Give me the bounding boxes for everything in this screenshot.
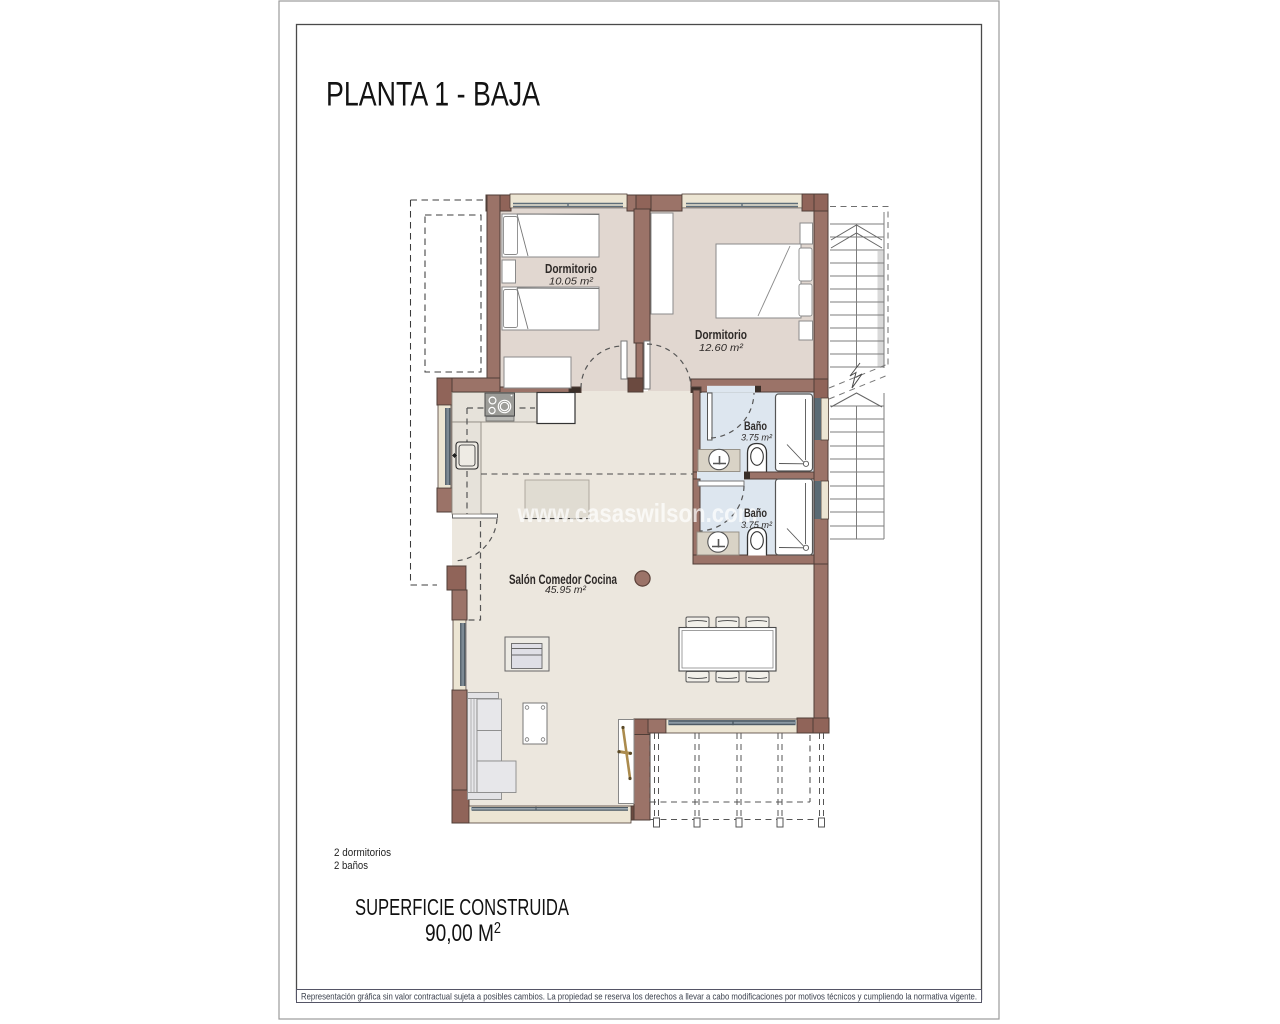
svg-text:2 dormitorios: 2 dormitorios — [334, 847, 391, 859]
svg-text:12.60 m²: 12.60 m² — [699, 342, 744, 354]
svg-text:90,00 M2: 90,00 M2 — [425, 920, 501, 947]
svg-text:Representación gráfica sin val: Representación gráfica sin valor contrac… — [301, 992, 977, 1002]
svg-text:45.95 m²: 45.95 m² — [545, 584, 586, 596]
svg-text:3.75 m²: 3.75 m² — [741, 433, 773, 444]
svg-text:www.casaswilson.com: www.casaswilson.com — [517, 498, 758, 528]
svg-text:SUPERFICIE CONSTRUIDA: SUPERFICIE CONSTRUIDA — [355, 894, 569, 920]
svg-text:Dormitorio: Dormitorio — [545, 262, 597, 276]
svg-text:3.75 m²: 3.75 m² — [741, 520, 773, 531]
svg-text:Baño: Baño — [744, 421, 767, 433]
svg-text:Dormitorio: Dormitorio — [695, 328, 747, 342]
svg-text:2 baños: 2 baños — [334, 860, 368, 872]
svg-text:PLANTA 1 - BAJA: PLANTA 1 - BAJA — [326, 76, 540, 114]
svg-text:Baño: Baño — [744, 508, 767, 520]
svg-text:10.05 m²: 10.05 m² — [549, 276, 594, 288]
